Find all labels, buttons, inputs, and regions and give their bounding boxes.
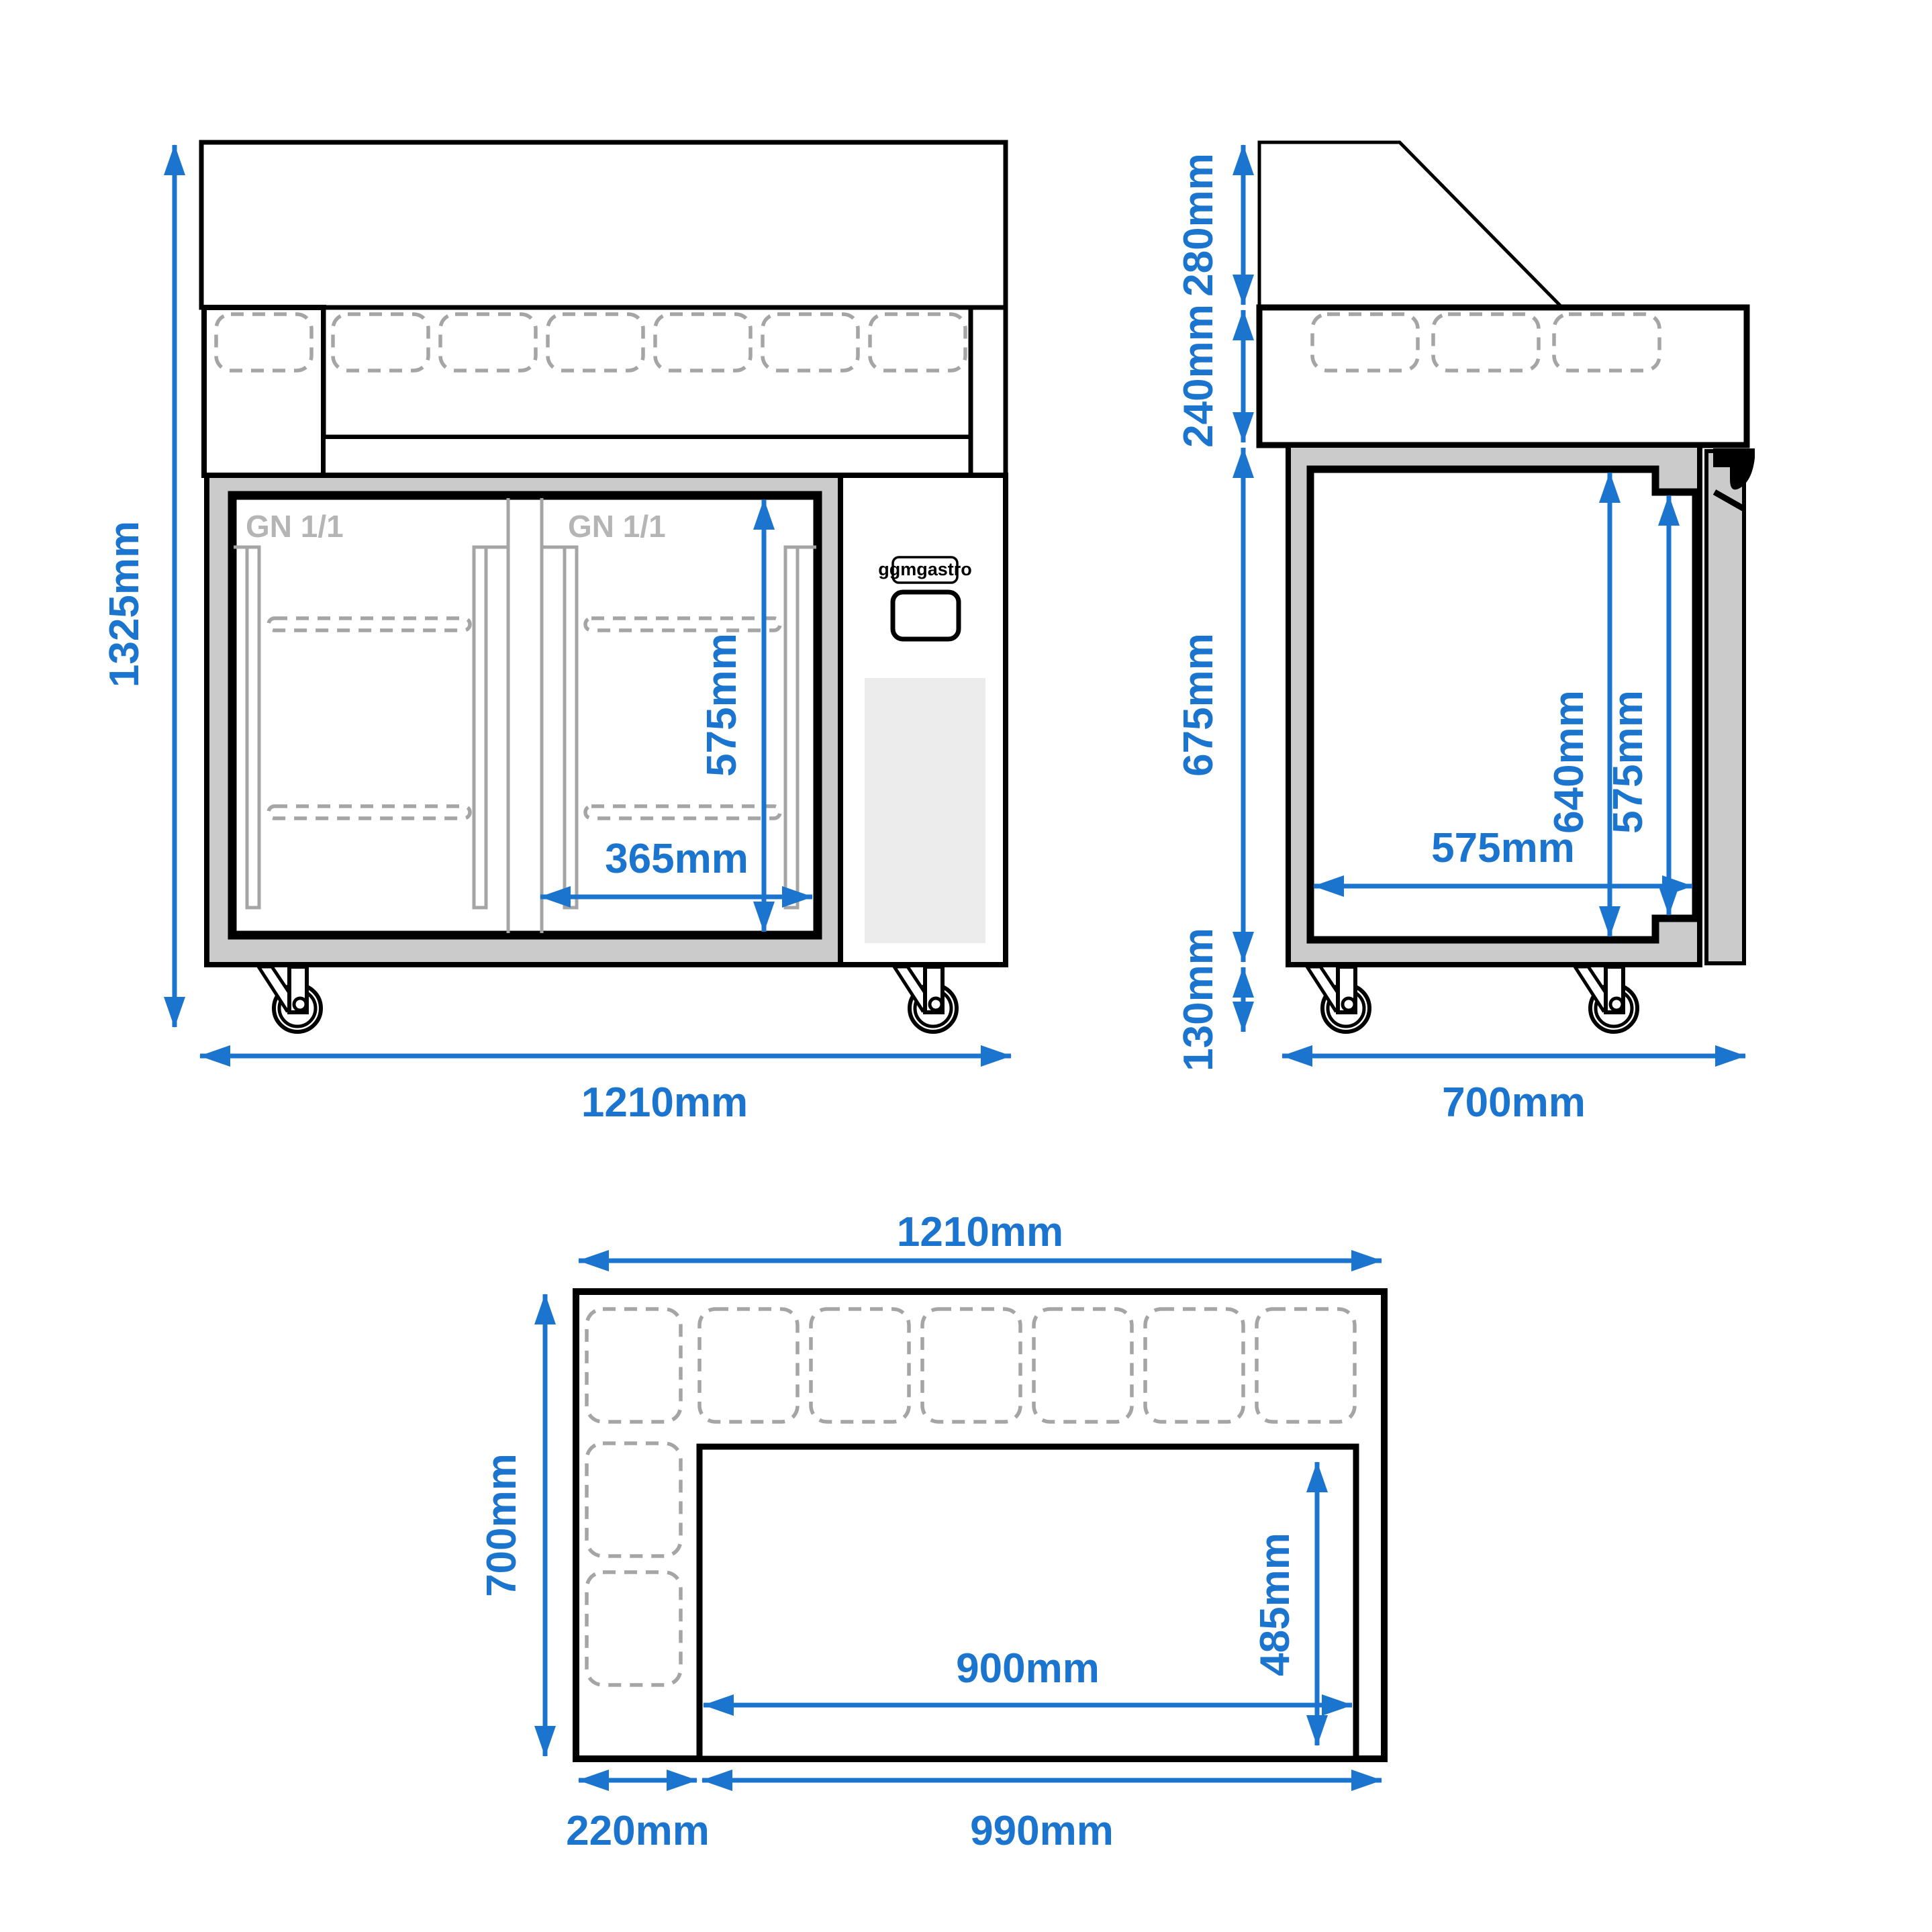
dim-cutout-width-label: 900mm	[956, 1645, 1100, 1692]
dim-worktop-width-label: 990mm	[970, 1808, 1114, 1854]
door-rail	[474, 547, 486, 908]
door-rail	[565, 547, 577, 908]
top-view: 1210mm 700mm 485mm 900mm 220mm 990mm	[479, 1209, 1384, 1854]
dim-compressor-width-label: 220mm	[566, 1808, 710, 1854]
side-door-profile	[1706, 451, 1744, 963]
dim-top-depth-label: 700mm	[479, 1453, 525, 1597]
front-gn-right-box	[324, 307, 971, 437]
front-gn-left-box	[204, 307, 324, 475]
dim-front-height-label: 1325mm	[101, 521, 148, 687]
door1-gn-label: GN 1/1	[246, 509, 344, 544]
door-rail	[247, 547, 259, 908]
front-rail-band	[324, 437, 971, 475]
door2-gn-label: GN 1/1	[568, 509, 666, 544]
front-glass-top	[201, 142, 1006, 307]
dim-door-height-label: 575mm	[699, 633, 745, 777]
dim-interior-height-label: 640mm	[1546, 690, 1592, 834]
dim-glass-height-label: 280mm	[1175, 153, 1222, 297]
side-gn-box	[1259, 307, 1747, 445]
dim-top-width-label: 1210mm	[897, 1209, 1063, 1255]
dim-depth-label: 700mm	[1442, 1079, 1586, 1126]
dim-body-height-label: 675mm	[1175, 633, 1222, 777]
brand-label: ggmgastro	[878, 559, 972, 579]
dim-front-width-label: 1210mm	[581, 1079, 748, 1126]
dim-cutout-depth-label: 485mm	[1252, 1533, 1298, 1676]
door-rail	[785, 547, 798, 908]
dim-pan-section-label: 240mm	[1175, 304, 1222, 448]
dim-caster-height-label: 130mm	[1175, 928, 1222, 1071]
dim-side-door-height-label: 575mm	[1605, 690, 1651, 834]
control-panel	[893, 592, 959, 639]
drawing-page: GN 1/1 GN 1/1 ggmgastro 1325mm 1210mm 57…	[0, 0, 1932, 1932]
dim-door-width-label: 365mm	[605, 836, 748, 882]
vent-panel	[865, 678, 985, 943]
technical-drawing-canvas: GN 1/1 GN 1/1 ggmgastro 1325mm 1210mm 57…	[0, 0, 1932, 1932]
dim-interior-depth-label: 575mm	[1431, 825, 1575, 871]
front-right-side-panel	[971, 307, 1006, 475]
